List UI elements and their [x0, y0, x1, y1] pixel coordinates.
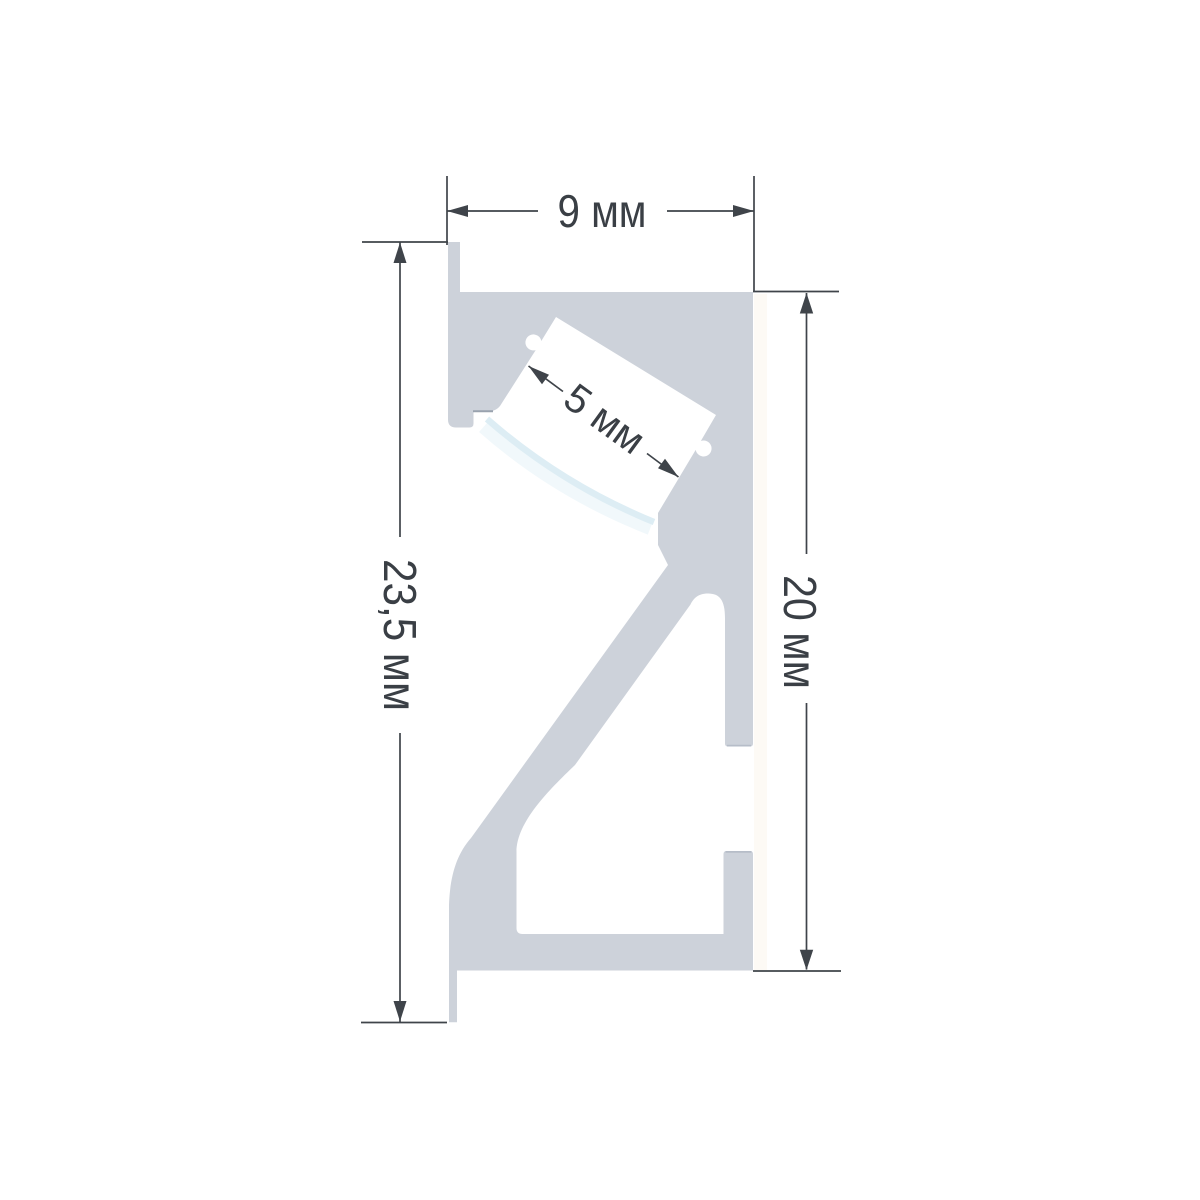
- svg-text:20 мм: 20 мм: [774, 575, 826, 689]
- svg-text:9 мм: 9 мм: [558, 185, 647, 237]
- svg-text:23,5 мм: 23,5 мм: [374, 559, 426, 711]
